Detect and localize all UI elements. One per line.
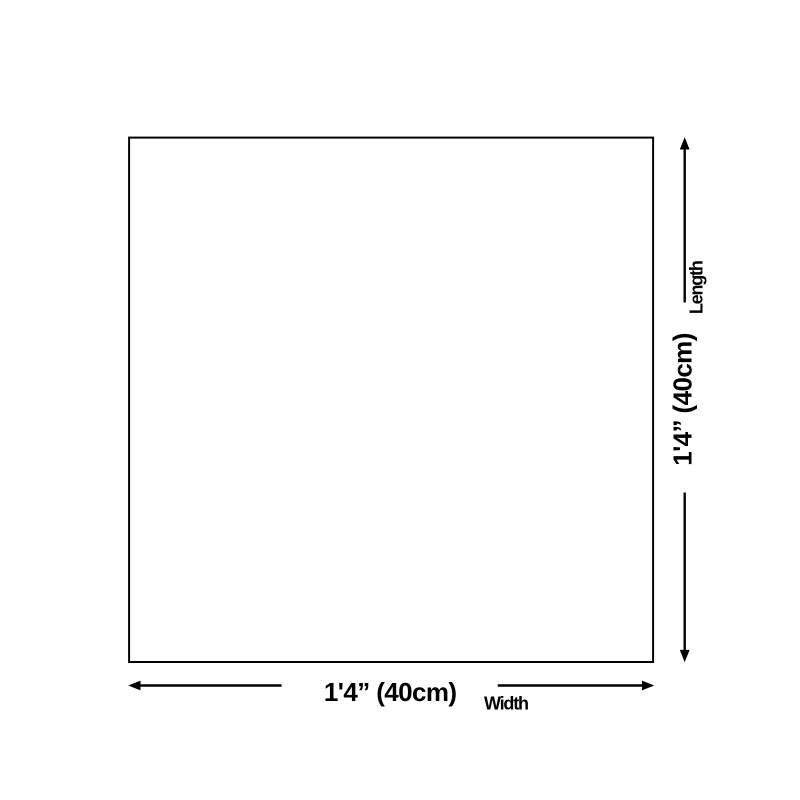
svg-text:Length: Length xyxy=(687,261,707,314)
svg-text:1'4” (40cm): 1'4” (40cm) xyxy=(668,333,698,466)
svg-text:1'4” (40cm): 1'4” (40cm) xyxy=(324,677,457,707)
svg-text:Width: Width xyxy=(484,694,528,714)
